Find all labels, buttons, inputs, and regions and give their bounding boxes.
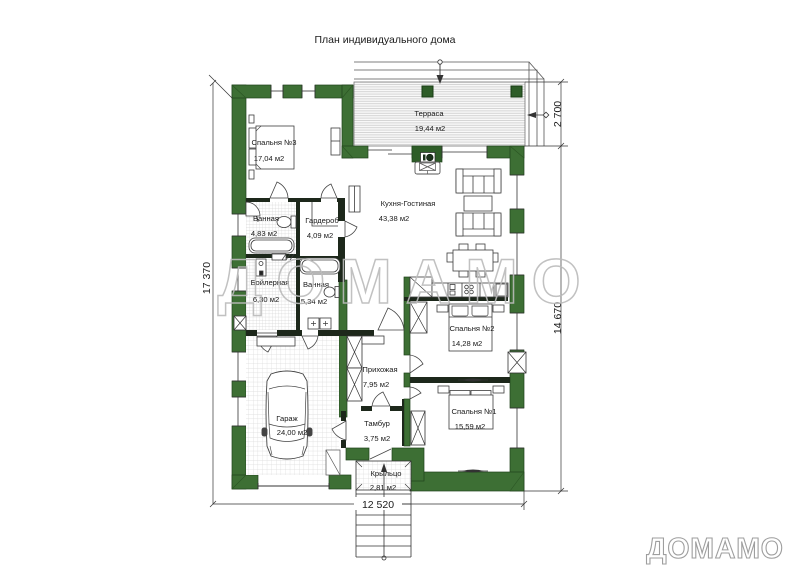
svg-text:Тамбур: Тамбур xyxy=(364,419,390,428)
svg-text:ДОМАМО: ДОМАМО xyxy=(217,247,594,317)
svg-text:43,38 м2: 43,38 м2 xyxy=(379,214,410,223)
svg-text:2 700: 2 700 xyxy=(552,101,564,127)
svg-text:Терраса: Терраса xyxy=(414,109,444,118)
svg-text:14,28 м2: 14,28 м2 xyxy=(452,339,483,348)
svg-text:Кухня-Гостиная: Кухня-Гостиная xyxy=(381,199,436,208)
svg-text:Спальня №1: Спальня №1 xyxy=(452,407,497,416)
svg-text:План индивидуального дома: План индивидуального дома xyxy=(314,34,455,46)
svg-text:19,44 м2: 19,44 м2 xyxy=(415,124,446,133)
svg-text:Гардероб: Гардероб xyxy=(305,216,339,225)
svg-text:Спальня №2: Спальня №2 xyxy=(450,324,495,333)
svg-text:Крыльцо: Крыльцо xyxy=(371,469,402,478)
svg-text:3,75 м2: 3,75 м2 xyxy=(364,434,390,443)
svg-text:24,00 м2: 24,00 м2 xyxy=(277,428,308,437)
svg-text:Ванная: Ванная xyxy=(253,214,279,223)
svg-text:15,59 м2: 15,59 м2 xyxy=(455,422,486,431)
svg-text:7,95 м2: 7,95 м2 xyxy=(363,380,389,389)
svg-text:4,09 м2: 4,09 м2 xyxy=(307,231,333,240)
svg-text:Гараж: Гараж xyxy=(276,414,298,423)
svg-text:17 370: 17 370 xyxy=(201,262,213,294)
svg-text:ДОМАМО: ДОМАМО xyxy=(646,533,784,565)
svg-text:Спальня №3: Спальня №3 xyxy=(252,138,297,147)
svg-text:12 520: 12 520 xyxy=(362,499,394,511)
svg-text:Прихожая: Прихожая xyxy=(362,365,397,374)
svg-text:4,83 м2: 4,83 м2 xyxy=(251,229,277,238)
svg-text:17,04 м2: 17,04 м2 xyxy=(254,154,285,163)
svg-text:2,81 м2: 2,81 м2 xyxy=(370,483,396,492)
